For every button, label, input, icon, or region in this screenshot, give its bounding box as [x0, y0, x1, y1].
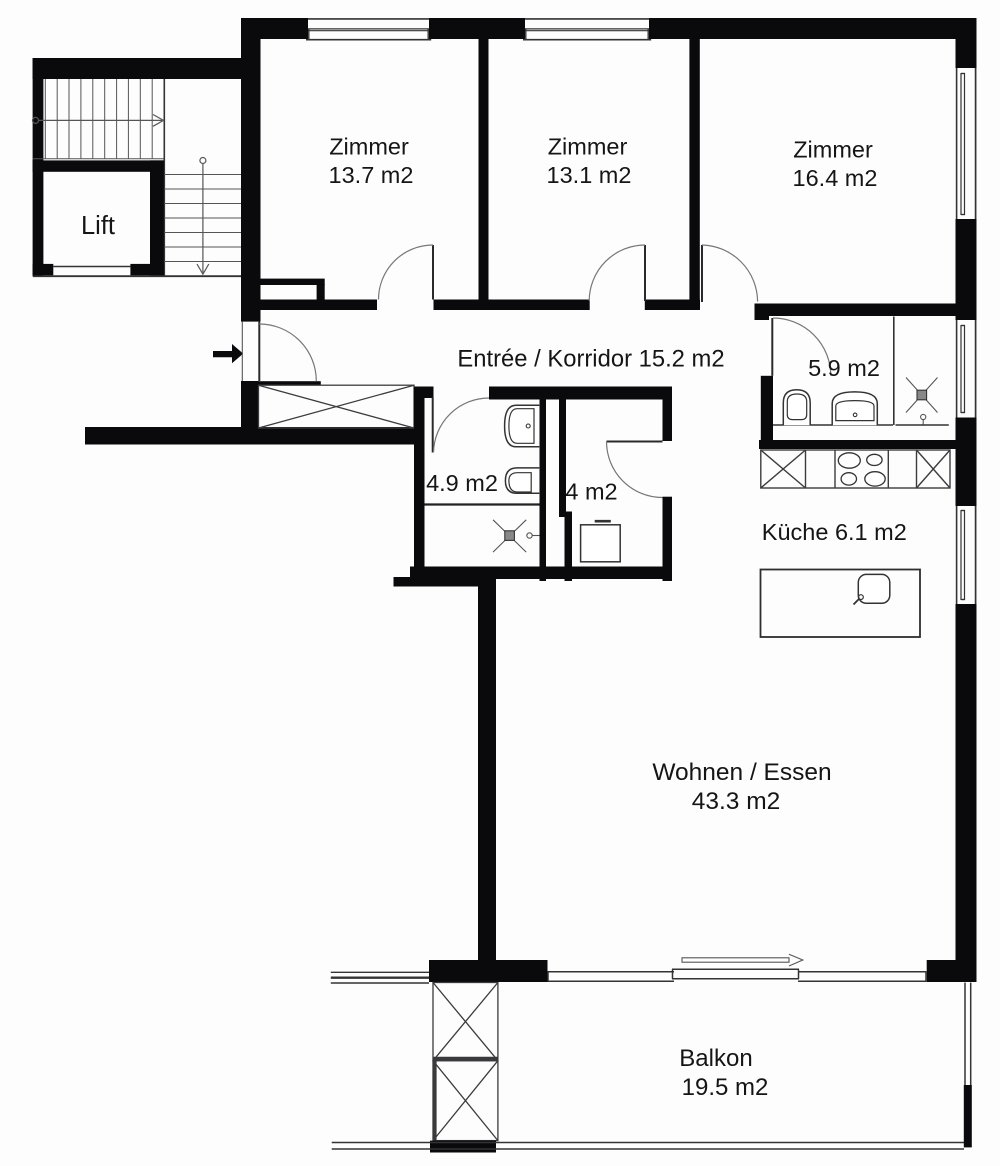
- svg-text:43.3 m2: 43.3 m2: [692, 788, 781, 815]
- svg-text:13.7 m2: 13.7 m2: [329, 162, 414, 188]
- svg-text:13.1 m2: 13.1 m2: [547, 162, 632, 188]
- svg-text:Lift: Lift: [81, 212, 115, 240]
- svg-text:Zimmer: Zimmer: [548, 134, 628, 160]
- svg-text:Zimmer: Zimmer: [793, 137, 873, 163]
- svg-text:Entrée / Korridor 15.2 m2: Entrée / Korridor 15.2 m2: [457, 346, 724, 373]
- svg-text:Balkon: Balkon: [679, 1045, 752, 1072]
- svg-text:Küche 6.1 m2: Küche 6.1 m2: [762, 519, 907, 545]
- svg-text:4 m2: 4 m2: [565, 479, 617, 505]
- svg-text:19.5 m2: 19.5 m2: [682, 1074, 769, 1101]
- svg-text:4.9 m2: 4.9 m2: [426, 470, 498, 496]
- svg-text:5.9 m2: 5.9 m2: [808, 355, 880, 381]
- svg-text:Zimmer: Zimmer: [329, 134, 409, 160]
- svg-text:16.4 m2: 16.4 m2: [793, 165, 878, 191]
- svg-text:Wohnen / Essen: Wohnen / Essen: [652, 759, 831, 786]
